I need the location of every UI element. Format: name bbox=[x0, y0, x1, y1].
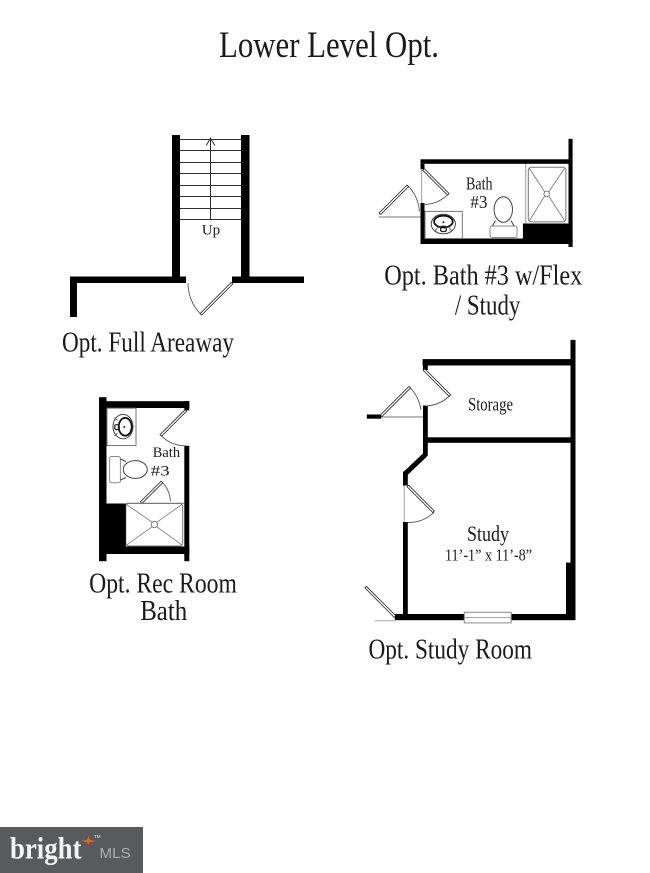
svg-text:#3: #3 bbox=[151, 463, 170, 479]
svg-text:MLS: MLS bbox=[100, 845, 133, 862]
svg-text:Opt. Bath #3 w/Flex: Opt. Bath #3 w/Flex bbox=[384, 261, 582, 292]
svg-text:Bath: Bath bbox=[153, 445, 181, 461]
svg-text:#3: #3 bbox=[470, 192, 487, 212]
svg-text:Storage: Storage bbox=[468, 396, 513, 416]
svg-text:Opt. Rec Room: Opt. Rec Room bbox=[89, 569, 237, 600]
svg-text:bright: bright bbox=[10, 831, 82, 866]
svg-text:Up: Up bbox=[202, 223, 221, 239]
svg-text:Bath: Bath bbox=[466, 174, 493, 194]
svg-text:Lower Level Opt.: Lower Level Opt. bbox=[219, 25, 439, 66]
svg-text:Study: Study bbox=[467, 521, 510, 546]
svg-text:TM: TM bbox=[94, 834, 101, 839]
svg-text:11’-1” x 11’-8”: 11’-1” x 11’-8” bbox=[445, 546, 532, 565]
svg-text:Opt. Full Areaway: Opt. Full Areaway bbox=[62, 328, 234, 359]
svg-text:Bath: Bath bbox=[140, 596, 187, 627]
svg-text:Opt. Study Room: Opt. Study Room bbox=[368, 635, 532, 666]
svg-text:/ Study: / Study bbox=[455, 291, 521, 322]
